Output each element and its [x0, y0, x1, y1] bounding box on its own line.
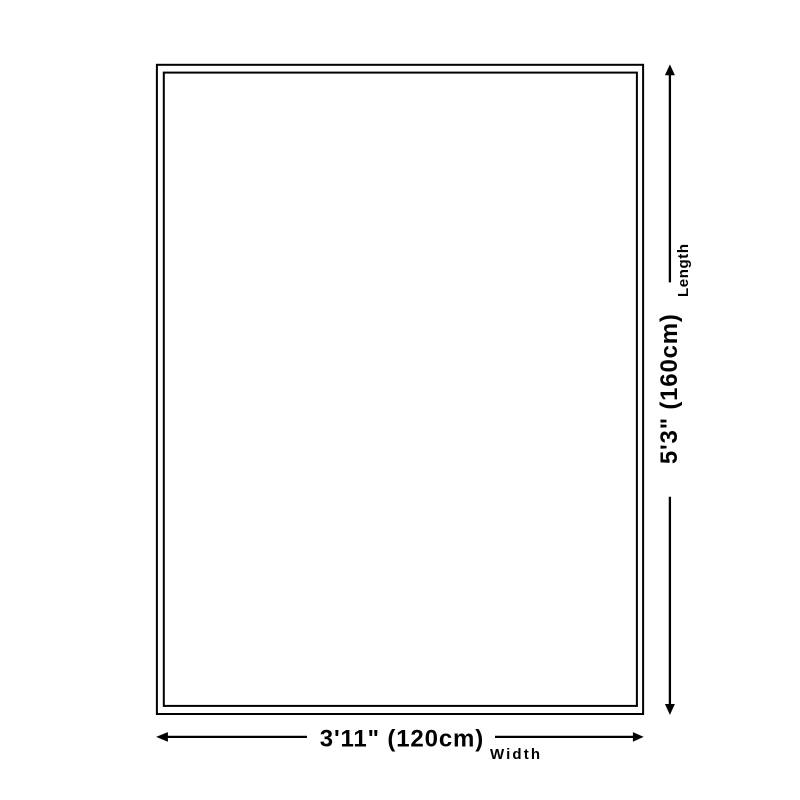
svg-text:Length: Length: [675, 244, 692, 297]
svg-text:3'11" (120cm): 3'11" (120cm): [320, 725, 484, 752]
svg-text:Width: Width: [490, 746, 540, 763]
svg-text:5'3" (160cm): 5'3" (160cm): [656, 314, 683, 464]
